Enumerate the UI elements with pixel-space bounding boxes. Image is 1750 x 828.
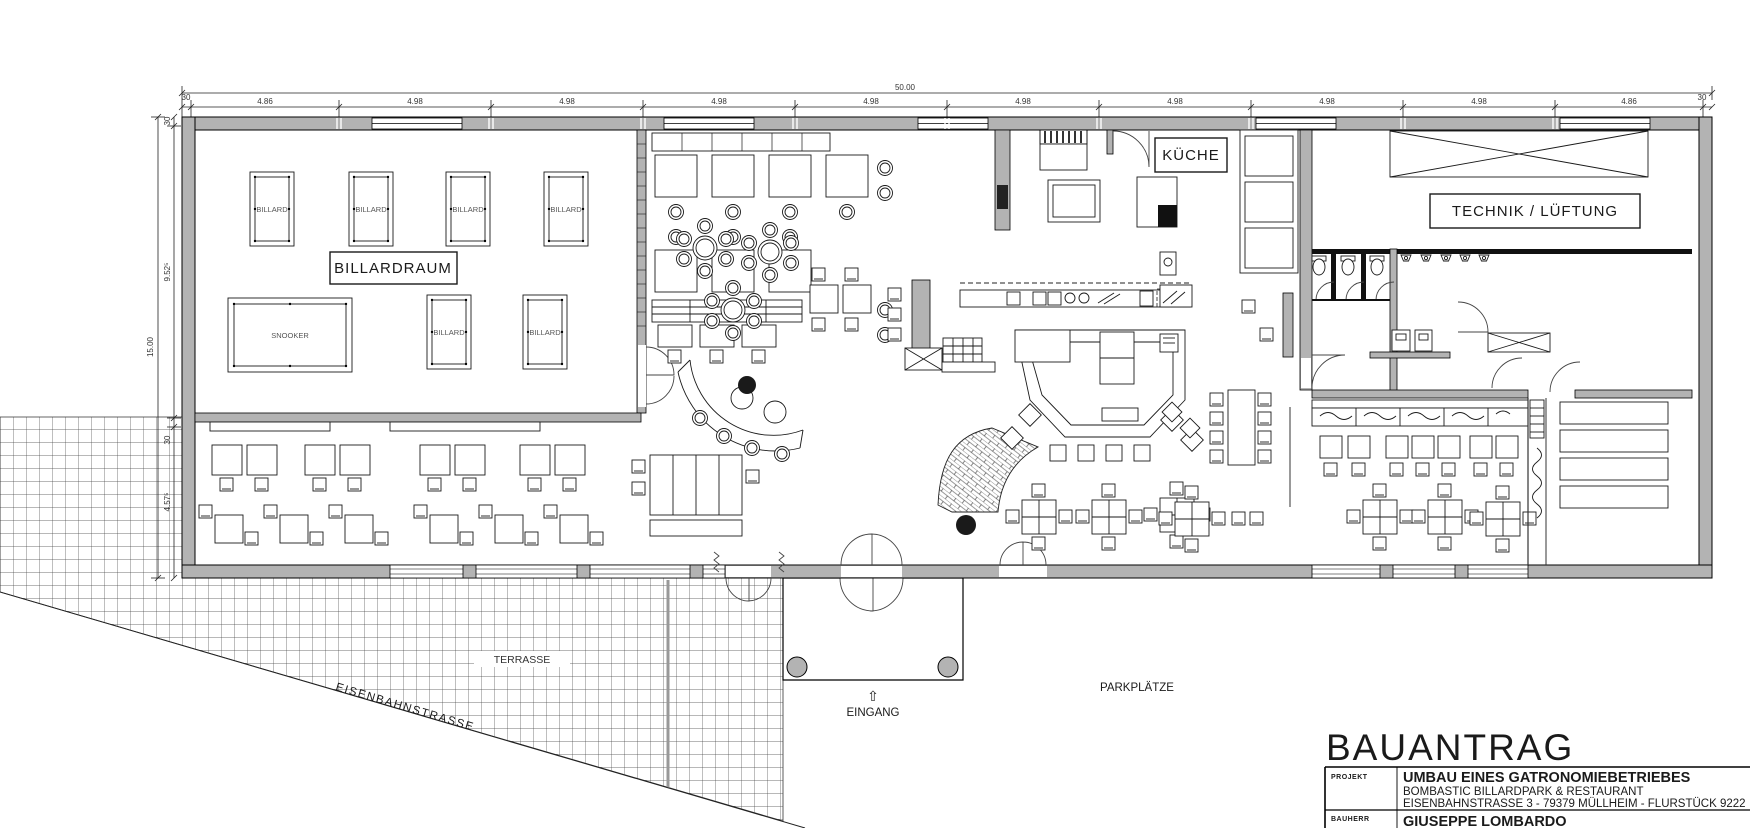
curved-banquette [678,360,803,462]
plant [956,515,976,535]
left-seating [199,422,603,545]
svg-text:30: 30 [182,93,191,102]
svg-text:9.52⁵: 9.52⁵ [163,263,172,282]
snooker-table: SNOOKER [228,298,352,372]
svg-text:4.86: 4.86 [257,97,273,106]
kueche-label: KÜCHE [1162,146,1220,164]
svg-text:4.98: 4.98 [863,97,879,106]
entrance-arrow-icon: ⇧ [867,688,879,704]
svg-text:30: 30 [163,435,172,444]
billard-label: BILLARD [452,205,484,214]
main-entrance-door [841,534,902,565]
bauherr-value: GIUSEPPE LOMBARDO [1403,814,1567,828]
svg-text:4.98: 4.98 [1319,97,1335,106]
snooker-label: SNOOKER [271,331,309,340]
svg-text:4.98: 4.98 [711,97,727,106]
svg-text:4.98: 4.98 [1471,97,1487,106]
svg-text:4.98: 4.98 [1167,97,1183,106]
ventilation-unit [1390,131,1648,177]
entrance-porch: ⇧ EINGANG [783,578,963,719]
technik-label-box: TECHNIK / LÜFTUNG [1430,194,1640,228]
bar-counter [1001,330,1204,461]
billard-label: BILLARD [550,205,582,214]
billiard-table [250,172,588,246]
table-row [199,505,603,545]
billiard-room: BILLARD BILLARD BILLARD BILLARD SNOOKER … [195,130,674,422]
banquette-tables [1320,436,1518,476]
eingang-label: EINGANG [846,707,899,719]
billard-label: BILLARD [529,328,561,337]
long-table [1210,390,1271,465]
projekt-line2: BOMBASTIC BILLARDPARK & RESTAURANT [1403,786,1643,798]
svg-text:50.00: 50.00 [895,83,916,92]
banquette-bench [1312,400,1528,426]
billard-label: BILLARD [355,205,387,214]
drawing-title: BAUANTRAG [1326,727,1574,768]
terrasse-label: TERRASSE [494,654,551,666]
title-block: BAUANTRAG PROJEKT UMBAU EINES GATRONOMIE… [1325,727,1750,828]
kueche-label-box: KÜCHE [1155,138,1227,172]
billard-label: BILLARD [256,205,288,214]
technik-label: TECHNIK / LÜFTUNG [1452,202,1618,220]
billardraum-label: BILLARDRAUM [334,260,452,277]
svg-text:30: 30 [1698,93,1707,102]
bottom-tables [1159,484,1536,552]
window-tables [655,155,893,220]
svg-text:4.98: 4.98 [1015,97,1031,106]
billard-label: BILLARD [433,328,465,337]
svg-text:30: 30 [163,116,172,125]
long-table-block [632,455,759,536]
parkplaetze-label: PARKPLÄTZE [1100,682,1174,694]
svg-text:4.86: 4.86 [1621,97,1637,106]
projekt-label: PROJEKT [1331,774,1368,781]
right-wing [1159,362,1692,565]
plant [738,376,756,394]
svg-text:15.00: 15.00 [146,336,155,357]
projekt-value: UMBAU EINES GATRONOMIEBETRIEBES [1403,770,1691,786]
brick-path [938,428,1038,512]
bauherr-label: BAUHERR [1331,816,1370,823]
floor-plan: TERRASSE EISENBAHNSTRASSE ⇧ EINGANG PARK… [0,0,1750,828]
projekt-line3: EISENBAHNSTRASSE 3 - 79379 MÜLLHEIM - FL… [1403,798,1746,810]
svg-text:4.57⁵: 4.57⁵ [163,493,172,512]
billardraum-label-box: BILLARDRAUM [330,252,457,284]
svg-text:4.98: 4.98 [559,97,575,106]
table-row [212,445,585,491]
svg-text:4.98: 4.98 [407,97,423,106]
storage-room [1550,362,1668,508]
radiator [1533,448,1542,518]
dimension-top-labels: 30 4.86 4.98 4.98 4.98 4.98 4.98 4.98 4.… [182,83,1707,106]
